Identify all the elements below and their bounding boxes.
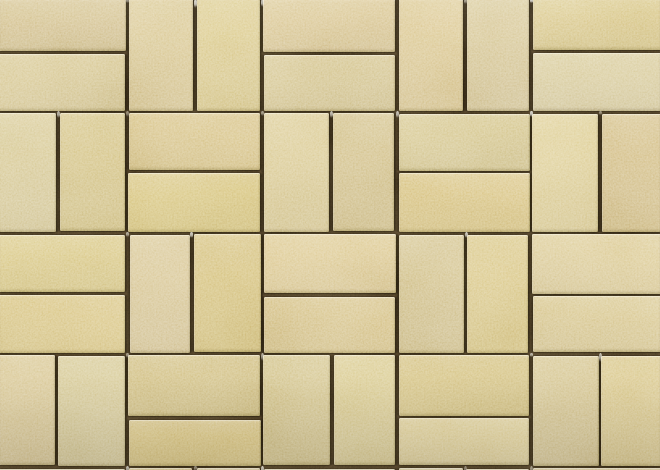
joint-glint-highlight	[530, 111, 533, 117]
paver-brick	[533, 0, 660, 50]
joint-glint-highlight	[530, 466, 533, 470]
paver-brick	[0, 235, 125, 292]
paver-brick	[533, 296, 660, 353]
paver-brick	[533, 356, 599, 466]
paver-brick	[128, 355, 259, 416]
joint-glint-highlight	[599, 111, 602, 115]
paver-brick	[467, 235, 528, 353]
joint-glint-highlight	[194, 0, 197, 8]
paver-brick	[399, 418, 529, 465]
paver-brick	[532, 234, 660, 293]
paver-brick	[130, 235, 190, 353]
paver-brick	[194, 234, 261, 353]
paver-brick	[399, 0, 463, 111]
paver-brick	[533, 53, 660, 110]
joint-glint-highlight	[126, 0, 129, 3]
paver-brick	[399, 173, 529, 232]
paver-brick	[333, 113, 395, 231]
paver-brick	[58, 356, 125, 466]
joint-glint-highlight	[465, 232, 468, 238]
paver-brick	[60, 113, 125, 231]
joint-glint-highlight	[396, 111, 399, 118]
joint-glint-highlight	[126, 353, 129, 358]
paver-brick	[0, 295, 125, 353]
paver-brick	[0, 355, 55, 465]
paver-pavement	[0, 0, 660, 470]
joint-glint-highlight	[126, 232, 129, 237]
paver-brick	[128, 173, 260, 233]
joint-glint-highlight	[261, 353, 264, 361]
paver-brick	[129, 113, 260, 169]
joint-glint-highlight	[126, 111, 129, 117]
paver-brick	[129, 420, 261, 466]
joint-glint-highlight	[261, 0, 264, 7]
paver-brick	[197, 0, 260, 111]
paver-brick	[264, 234, 395, 293]
paver-brick	[264, 55, 395, 111]
paver-brick	[129, 0, 193, 111]
paver-brick	[263, 355, 329, 465]
paver-brick	[263, 0, 394, 52]
joint-glint-highlight	[464, 466, 467, 470]
paver-brick	[264, 297, 395, 353]
paver-brick	[0, 54, 125, 111]
joint-glint-highlight	[261, 111, 264, 116]
joint-glint-highlight	[599, 353, 602, 362]
paver-brick	[467, 0, 529, 111]
joint-glint-highlight	[190, 232, 193, 238]
paver-brick	[399, 355, 529, 416]
joint-glint-highlight	[530, 0, 533, 3]
joint-glint-highlight	[57, 111, 60, 118]
joint-glint-highlight	[194, 466, 197, 470]
paver-brick	[399, 235, 464, 353]
paver-brick	[399, 114, 529, 171]
paver-brick	[0, 113, 56, 232]
joint-glint-highlight	[261, 466, 264, 470]
joint-glint-highlight	[126, 466, 129, 470]
paver-brick	[334, 355, 395, 465]
joint-glint-highlight	[330, 111, 333, 118]
paver-brick	[0, 0, 126, 51]
paver-brick	[602, 114, 660, 233]
paver-brick	[601, 356, 660, 466]
paver-brick	[264, 113, 329, 232]
paver-brick	[532, 114, 597, 232]
joint-glint-highlight	[464, 0, 467, 4]
joint-glint-highlight	[530, 353, 533, 357]
